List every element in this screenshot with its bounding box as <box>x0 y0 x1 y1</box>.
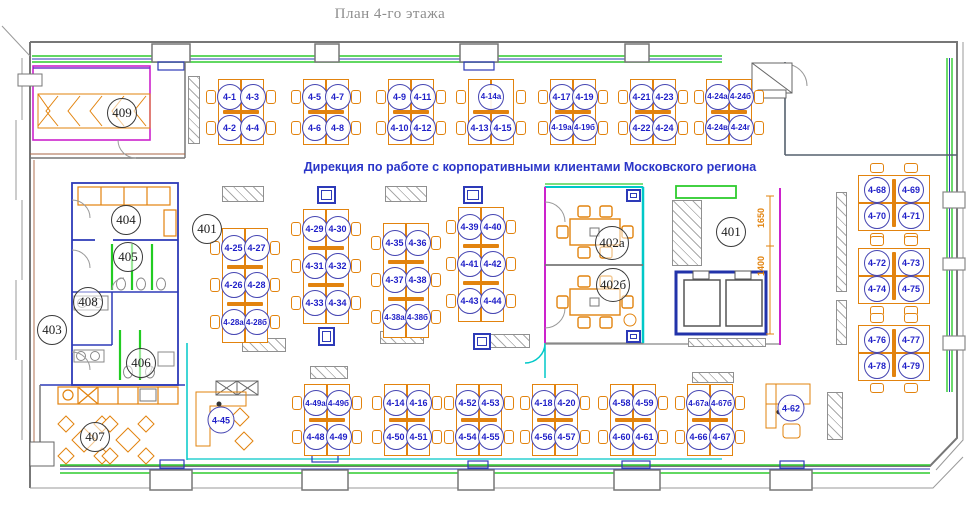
desk-separator <box>463 281 499 285</box>
chair <box>266 121 276 135</box>
chair <box>735 396 745 410</box>
coat-rack <box>385 186 427 202</box>
chair <box>538 121 548 135</box>
chair <box>351 121 361 135</box>
chair <box>291 296 301 310</box>
chair <box>431 273 441 287</box>
desk-label: 4-76 <box>864 327 890 353</box>
desk-label: 4-23 <box>652 84 678 110</box>
desk-separator <box>393 110 429 114</box>
chair <box>456 121 466 135</box>
chair <box>598 396 608 410</box>
desk-separator <box>692 418 728 422</box>
chair <box>291 222 301 236</box>
column <box>318 327 335 346</box>
chair <box>376 121 386 135</box>
chair <box>904 313 918 323</box>
room-label: 404 <box>111 205 141 235</box>
desk-separator <box>473 110 509 114</box>
desk-label: 4-70 <box>864 203 890 229</box>
desk-separator <box>461 418 497 422</box>
desk-label: 4-28б <box>244 309 270 335</box>
desk-label: 4-3 <box>240 84 266 110</box>
desk-label: 4-8 <box>325 115 351 141</box>
coat-rack <box>672 200 702 266</box>
furniture-layer: 4-14-34-24-44-54-74-64-84-94-114-104-124… <box>0 0 975 512</box>
coat-rack <box>836 192 847 292</box>
chair <box>444 396 454 410</box>
room-label: 402б <box>596 268 630 302</box>
chair <box>580 396 590 410</box>
chair <box>432 396 442 410</box>
coat-rack <box>827 392 843 440</box>
column <box>626 189 641 202</box>
desk-label: 4-49 <box>326 424 352 450</box>
chair <box>598 90 608 104</box>
chair <box>678 121 688 135</box>
desk-label: 4-61 <box>632 424 658 450</box>
desk-separator <box>388 260 424 264</box>
chair <box>372 396 382 410</box>
desk-label: 4-32 <box>325 253 351 279</box>
chair <box>675 430 685 444</box>
desk-label: 4-59 <box>632 390 658 416</box>
desk-separator <box>711 110 747 114</box>
desk-label: 4-72 <box>864 250 890 276</box>
chair <box>371 273 381 287</box>
chair <box>516 121 526 135</box>
desk-label: 4-27 <box>244 235 270 261</box>
chair <box>371 310 381 324</box>
chair <box>735 430 745 444</box>
chair <box>506 220 516 234</box>
chair <box>436 90 446 104</box>
chair <box>754 90 764 104</box>
desk-separator <box>308 110 344 114</box>
desk-label: 4-15 <box>490 115 516 141</box>
chair <box>431 236 441 250</box>
desk-label: 4-42 <box>480 251 506 277</box>
chair <box>436 121 446 135</box>
chair <box>694 121 704 135</box>
desk-label: 4-24 <box>652 115 678 141</box>
chair <box>206 121 216 135</box>
desk-label: 4-40 <box>480 214 506 240</box>
desk-label: 4-36 <box>405 230 431 256</box>
column <box>626 330 641 343</box>
chair <box>580 430 590 444</box>
desk-label: 4-38б <box>405 304 431 330</box>
desk-label: 4-45 <box>208 407 235 434</box>
desk-label: 4-19 <box>572 84 598 110</box>
chair <box>618 90 628 104</box>
desk-label: 4-77 <box>898 327 924 353</box>
chair <box>446 257 456 271</box>
dimension-label: 1650 <box>756 208 766 228</box>
chair <box>446 220 456 234</box>
chair <box>352 396 362 410</box>
desk-separator <box>389 418 425 422</box>
chair <box>210 315 220 329</box>
chair <box>598 430 608 444</box>
chair <box>291 121 301 135</box>
chair <box>516 90 526 104</box>
chair <box>292 430 302 444</box>
chair <box>351 259 361 273</box>
chair <box>504 430 514 444</box>
desk-label: 4-67 <box>709 424 735 450</box>
chair <box>456 90 466 104</box>
column <box>473 333 491 350</box>
desk-separator <box>537 418 573 422</box>
desk-label: 4-7 <box>325 84 351 110</box>
desk-label: 4-71 <box>898 203 924 229</box>
column <box>463 186 483 204</box>
chair <box>291 259 301 273</box>
desk-label: 4-78 <box>864 353 890 379</box>
chair <box>538 90 548 104</box>
desk-separator <box>227 302 263 306</box>
desk-label: 4-34 <box>325 290 351 316</box>
desk-label: 4-74 <box>864 276 890 302</box>
chair <box>270 278 280 292</box>
chair <box>351 222 361 236</box>
desk-separator <box>463 244 499 248</box>
room-label: 409 <box>107 98 137 128</box>
desk-label: 4-19б <box>572 115 598 141</box>
chair <box>870 236 884 246</box>
chair <box>206 90 216 104</box>
chair <box>376 90 386 104</box>
chair <box>270 315 280 329</box>
chair <box>266 90 276 104</box>
chair <box>675 396 685 410</box>
dimension-label: 1400 <box>756 256 766 276</box>
desk-label: 4-12 <box>410 115 436 141</box>
desk-label: 4-68 <box>864 177 890 203</box>
chair <box>352 430 362 444</box>
chair <box>904 163 918 173</box>
desk-label: 4-38 <box>405 267 431 293</box>
desk-label: 4-28 <box>244 272 270 298</box>
chair <box>270 241 280 255</box>
desk-label: 4-49б <box>326 390 352 416</box>
room-label: 401 <box>716 217 746 247</box>
chair <box>371 236 381 250</box>
chair <box>904 383 918 393</box>
desk-label: 4-11 <box>410 84 436 110</box>
desk-label: 4-51 <box>406 424 432 450</box>
chair <box>446 294 456 308</box>
desk-label: 4-75 <box>898 276 924 302</box>
coat-rack <box>188 76 200 144</box>
chair <box>658 430 668 444</box>
room-label: 408 <box>73 287 103 317</box>
room-label: 402а <box>595 226 629 260</box>
chair <box>372 430 382 444</box>
room-label: 401 <box>192 214 222 244</box>
coat-rack <box>490 334 530 348</box>
chair <box>506 257 516 271</box>
desk-separator <box>892 179 896 227</box>
chair <box>904 236 918 246</box>
desk-label: 4-20 <box>554 390 580 416</box>
chair <box>870 163 884 173</box>
desk-separator <box>223 110 259 114</box>
coat-rack <box>222 186 264 202</box>
desk-label: 4-30 <box>325 216 351 242</box>
floor-plan: План 4-го этажа Дирекция по работе с кор… <box>0 0 975 512</box>
coat-rack <box>688 338 766 347</box>
column <box>317 186 336 204</box>
chair <box>598 121 608 135</box>
chair <box>678 90 688 104</box>
room-label: 403 <box>37 315 67 345</box>
chair <box>506 294 516 308</box>
desk-label: 4-44 <box>480 288 506 314</box>
desk-label: 4-57 <box>554 424 580 450</box>
coat-rack <box>310 366 348 379</box>
chair <box>694 90 704 104</box>
chair <box>520 430 530 444</box>
room-label: 406 <box>126 348 156 378</box>
desk-separator <box>615 418 651 422</box>
desk-label: 4-53 <box>478 390 504 416</box>
chair <box>870 383 884 393</box>
chair <box>292 396 302 410</box>
chair <box>520 396 530 410</box>
coat-rack <box>836 300 847 345</box>
room-label: 407 <box>80 422 110 452</box>
desk-separator <box>388 297 424 301</box>
desk-separator <box>309 418 345 422</box>
desk-label: 4-62 <box>778 395 805 422</box>
chair <box>351 296 361 310</box>
chair <box>432 430 442 444</box>
chair <box>444 430 454 444</box>
desk-label: 4-24г <box>728 115 754 141</box>
desk-label: 4-67б <box>709 390 735 416</box>
desk-label: 4-14а <box>478 84 504 110</box>
desk-label: 4-16 <box>406 390 432 416</box>
desk-separator <box>555 110 591 114</box>
desk-separator <box>227 265 263 269</box>
room-label: 405 <box>113 242 143 272</box>
desk-separator <box>892 329 896 377</box>
desk-label: 4-4 <box>240 115 266 141</box>
desk-separator <box>308 283 344 287</box>
desk-label: 4-73 <box>898 250 924 276</box>
chair <box>754 121 764 135</box>
chair <box>291 90 301 104</box>
chair <box>431 310 441 324</box>
chair <box>351 90 361 104</box>
chair <box>504 396 514 410</box>
desk-separator <box>635 110 671 114</box>
desk-separator <box>892 252 896 300</box>
chair <box>658 396 668 410</box>
desk-separator <box>308 246 344 250</box>
chair <box>210 278 220 292</box>
desk-label: 4-69 <box>898 177 924 203</box>
coat-rack <box>692 372 734 383</box>
desk-label: 4-24б <box>728 84 754 110</box>
chair <box>870 313 884 323</box>
desk-label: 4-55 <box>478 424 504 450</box>
desk-label: 4-79 <box>898 353 924 379</box>
chair <box>618 121 628 135</box>
